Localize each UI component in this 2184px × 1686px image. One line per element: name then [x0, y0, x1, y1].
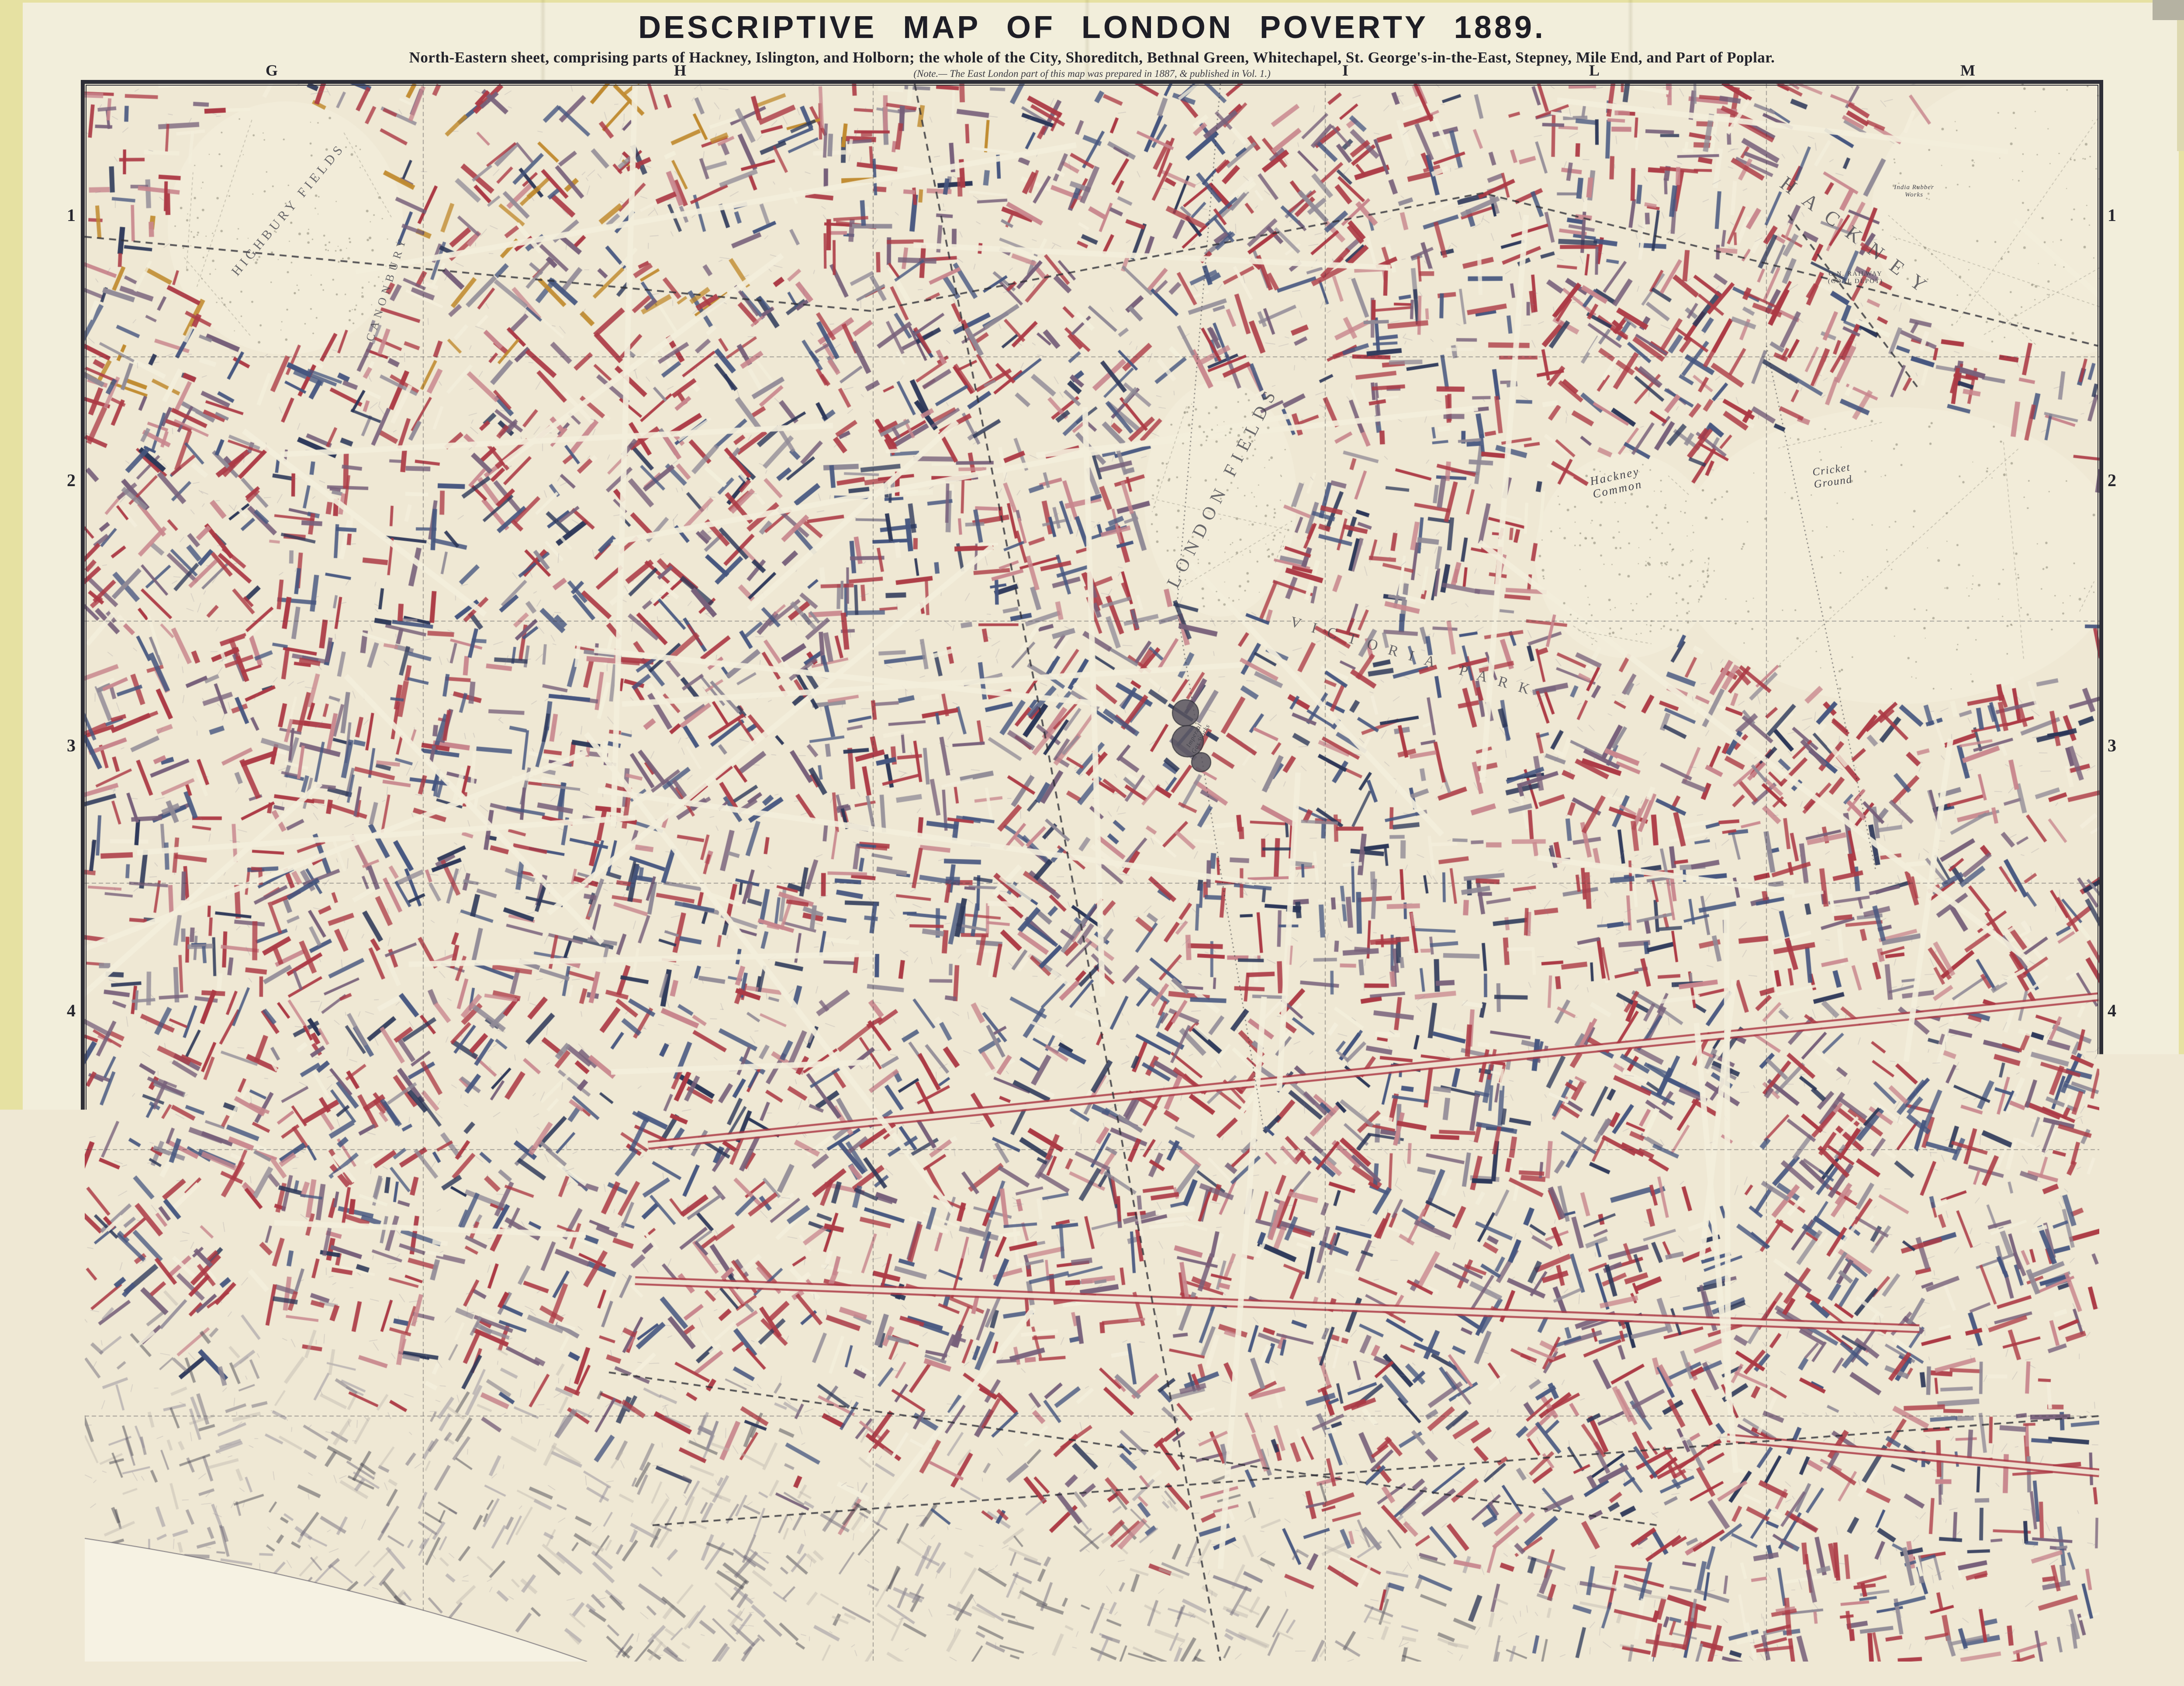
map-canvas	[85, 84, 2099, 1662]
map-frame	[81, 80, 2103, 1665]
scanned-map-page: DESCRIPTIVE MAP OF LONDON POVERTY 1889. …	[0, 0, 2184, 1686]
page-title: DESCRIPTIVE MAP OF LONDON POVERTY 1889.	[0, 10, 2184, 45]
page-note: (Note.— The East London part of this map…	[0, 68, 2184, 79]
page-subtitle: North-Eastern sheet, comprising parts of…	[0, 49, 2184, 66]
